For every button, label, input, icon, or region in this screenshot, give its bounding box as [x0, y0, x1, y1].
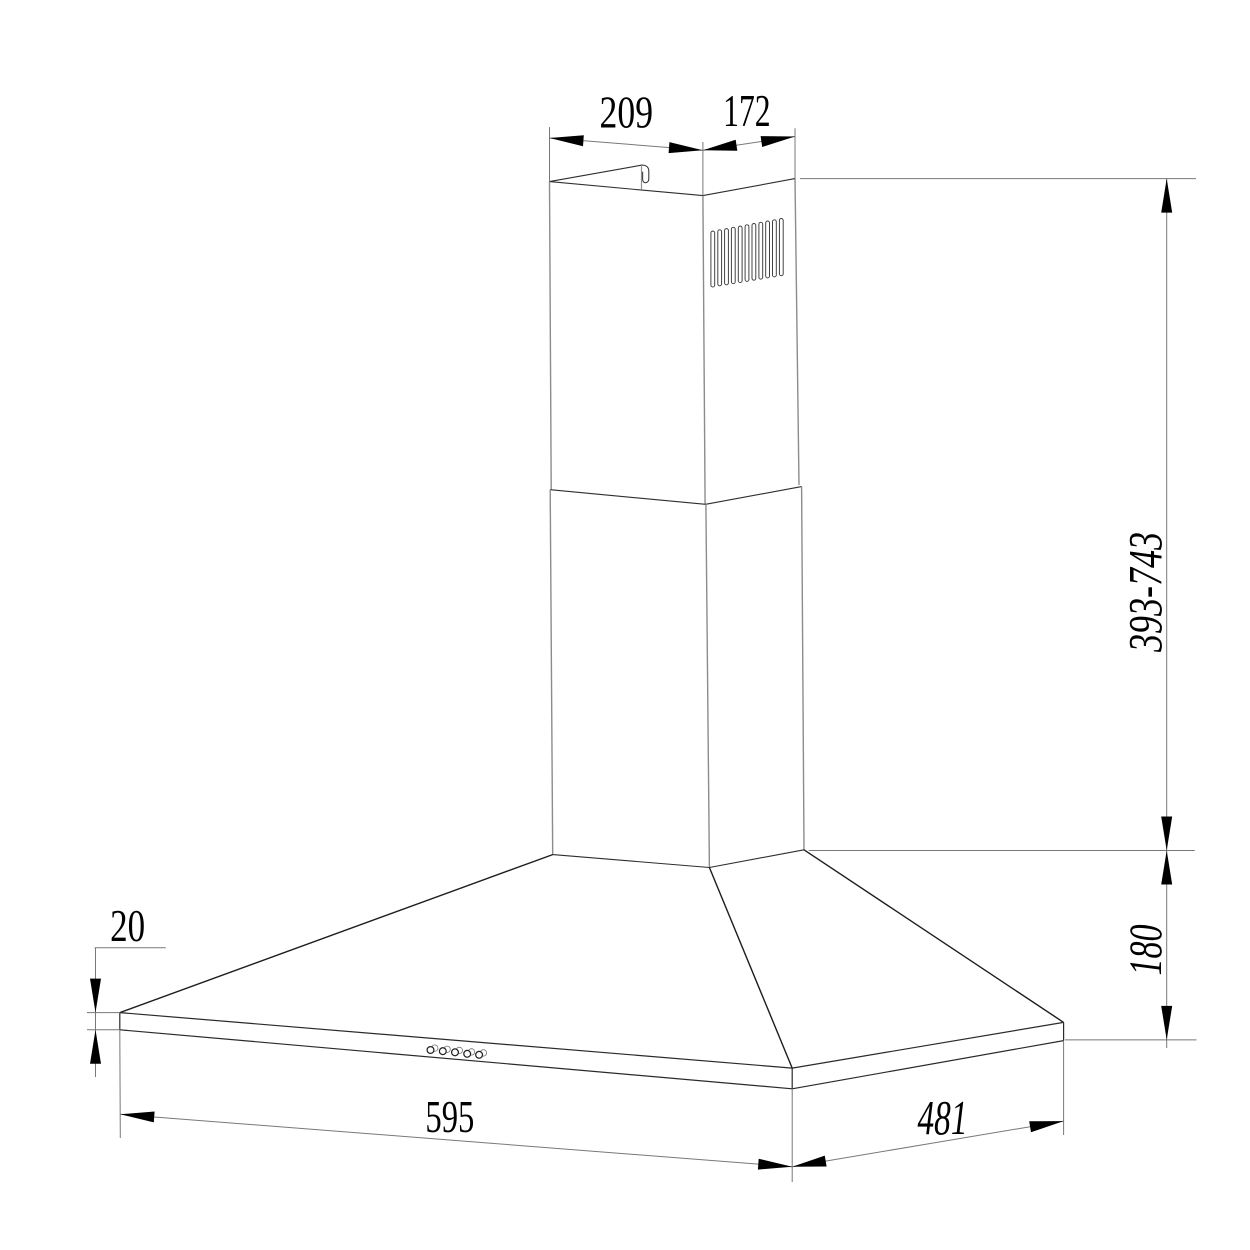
svg-text:481: 481: [918, 1090, 968, 1145]
svg-text:209: 209: [600, 87, 654, 138]
svg-text:20: 20: [110, 900, 145, 951]
svg-text:393-743: 393-743: [1120, 532, 1173, 653]
svg-text:180: 180: [1120, 925, 1172, 976]
svg-text:172: 172: [723, 85, 771, 136]
svg-text:595: 595: [425, 1091, 474, 1142]
